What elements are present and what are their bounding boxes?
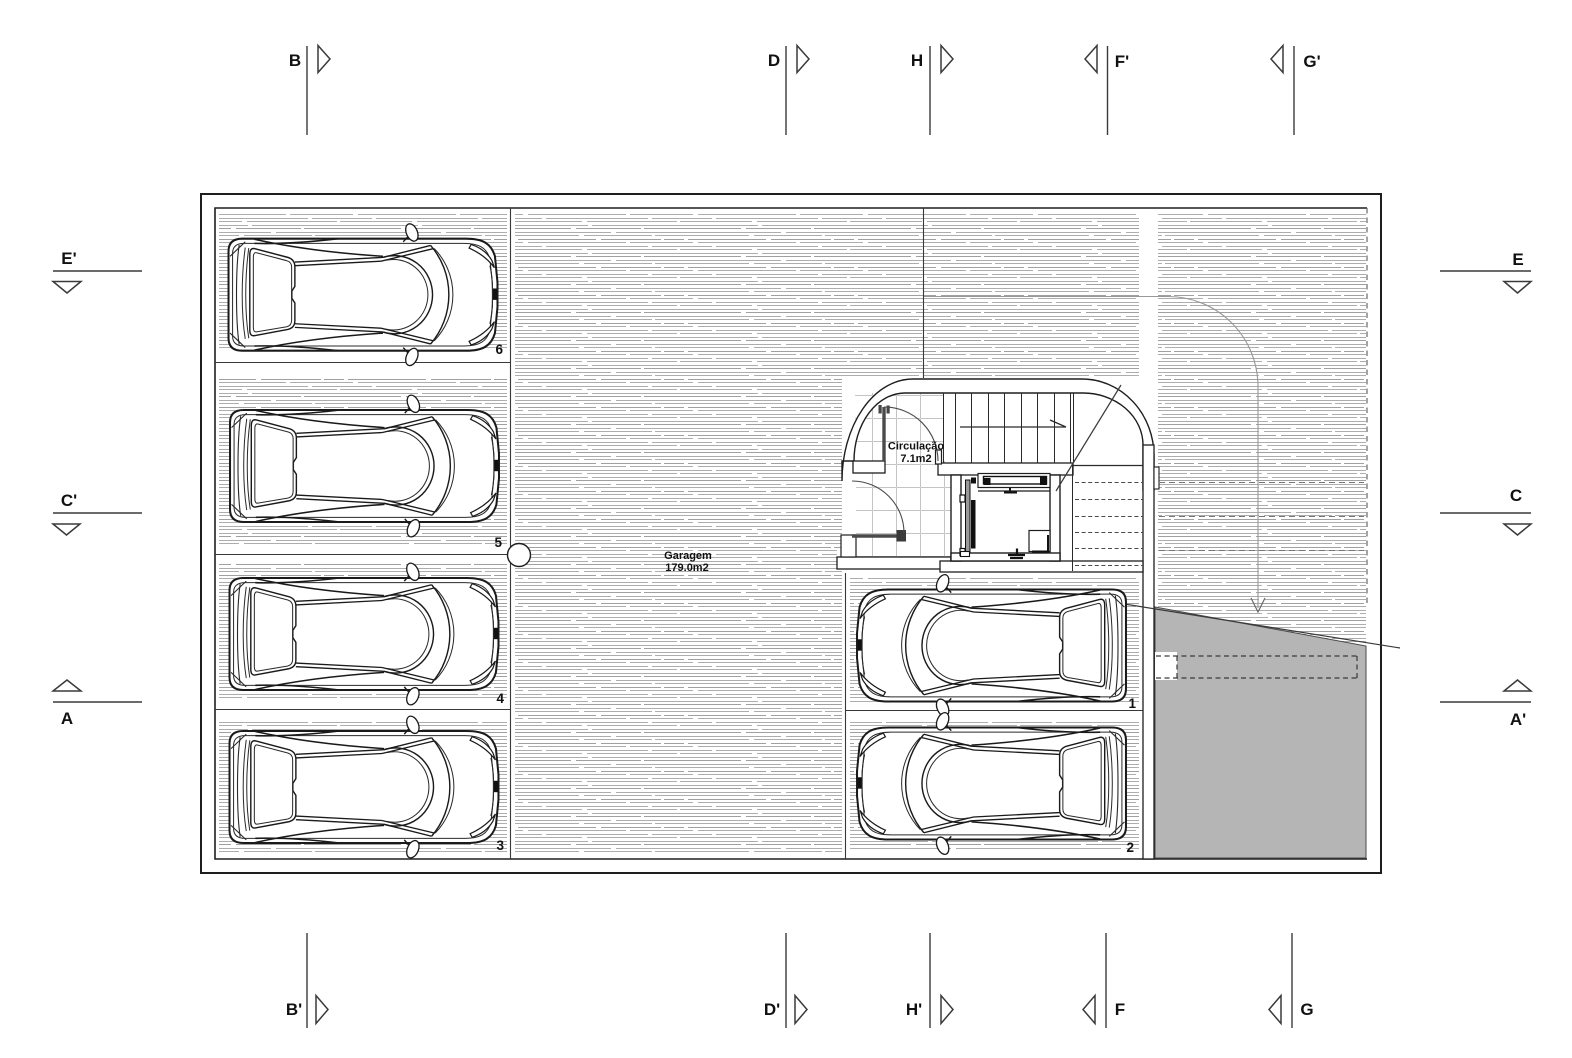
svg-text:7.1m2: 7.1m2 (900, 453, 931, 465)
svg-text:6: 6 (495, 342, 503, 357)
svg-text:D: D (768, 51, 780, 70)
svg-text:A: A (61, 709, 73, 728)
svg-text:D': D' (764, 1000, 780, 1019)
svg-text:B': B' (286, 1000, 302, 1019)
svg-text:C: C (1510, 486, 1522, 505)
svg-text:E': E' (61, 249, 76, 268)
svg-text:G: G (1300, 1000, 1313, 1019)
svg-text:H': H' (906, 1000, 922, 1019)
svg-text:F: F (1115, 1000, 1125, 1019)
svg-text:179.0m2: 179.0m2 (665, 562, 708, 574)
svg-text:H: H (911, 51, 923, 70)
svg-text:F': F' (1115, 52, 1129, 71)
svg-text:A': A' (1510, 710, 1526, 729)
svg-text:C': C' (61, 491, 77, 510)
svg-text:B: B (289, 51, 301, 70)
svg-text:G': G' (1303, 52, 1320, 71)
svg-text:4: 4 (496, 691, 504, 706)
svg-text:Garagem: Garagem (664, 550, 712, 562)
svg-text:5: 5 (494, 535, 502, 550)
svg-text:3: 3 (496, 838, 504, 853)
svg-text:1: 1 (1128, 696, 1136, 711)
svg-text:E: E (1512, 250, 1523, 269)
svg-text:2: 2 (1126, 840, 1134, 855)
svg-text:Circulação: Circulação (888, 441, 945, 453)
